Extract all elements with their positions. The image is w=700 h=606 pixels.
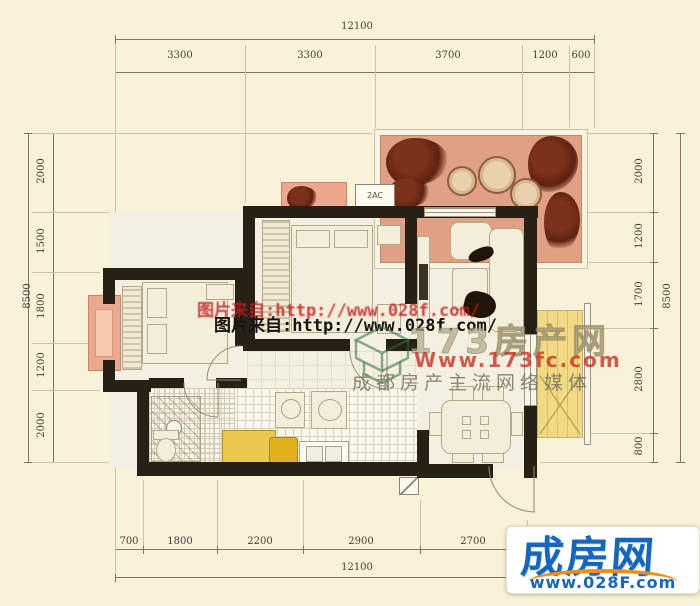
site-logo-card: 成房网 www.028F.com <box>506 526 700 594</box>
floorplan-image: 12100 3300 3300 3700 1200 600 700 1800 2… <box>0 0 700 606</box>
watermark-brand-slogan: 成都房产主流网络媒体 <box>352 368 592 395</box>
site-logo-url: www.028F.com <box>507 573 699 592</box>
